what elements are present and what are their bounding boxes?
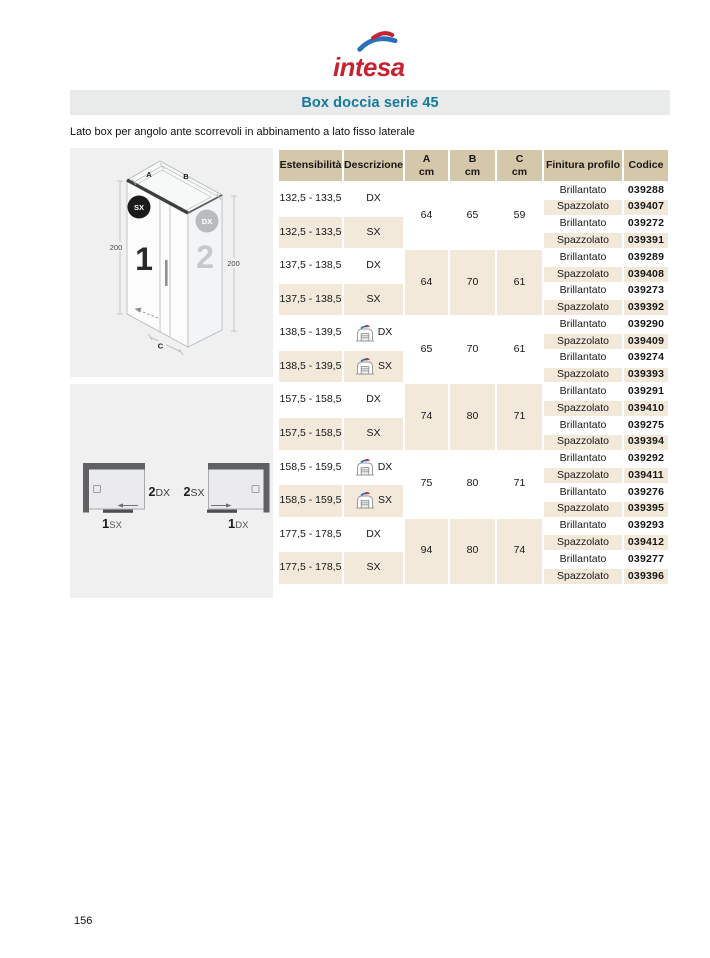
finish-cell: Spazzolato (543, 434, 623, 451)
page-number: 156 (74, 915, 92, 927)
dim-b-cell: 65 (449, 182, 496, 249)
column-header-0: Estensibilità (278, 149, 343, 182)
warehouse-icon (355, 492, 375, 509)
code-cell: 039395 (623, 501, 669, 518)
dim-c-cell: 71 (496, 451, 543, 518)
badge-dx-label: DX (202, 217, 212, 226)
dim-b-cell: 80 (449, 383, 496, 450)
code-cell: 039289 (623, 249, 669, 266)
orientation-label: DX (366, 260, 381, 272)
table-row: 137,5 - 138,5DX647061Brillantato039289 (278, 249, 669, 266)
warehouse-icon (355, 459, 375, 476)
description-content: DX (344, 193, 403, 205)
extensibility-cell: 137,5 - 138,5 (278, 249, 343, 283)
code-cell: 039409 (623, 333, 669, 350)
warehouse-icon (355, 358, 375, 375)
description-cell: DX (343, 182, 404, 216)
extensibility-cell: 177,5 - 178,5 (278, 518, 343, 552)
finish-cell: Brillantato (543, 283, 623, 300)
description-content: DX (344, 260, 403, 272)
height-right-label: 200 (227, 259, 240, 268)
extensibility-cell: 158,5 - 159,5 (278, 451, 343, 485)
code-cell: 039275 (623, 417, 669, 434)
code-cell: 039407 (623, 199, 669, 216)
description-cell: SX (343, 417, 404, 451)
badge-sx-label: SX (134, 203, 144, 212)
orientation-label: DX (366, 394, 381, 406)
description-cell: DX (343, 316, 404, 350)
extensibility-cell: 138,5 - 139,5 (278, 350, 343, 384)
dim-a-cell: 74 (404, 383, 449, 450)
finish-cell: Spazzolato (543, 266, 623, 283)
description-cell: DX (343, 451, 404, 485)
orientation-label: SX (366, 428, 380, 440)
extensibility-cell: 157,5 - 158,5 (278, 417, 343, 451)
table-body: 132,5 - 133,5DX646559Brillantato039288Sp… (278, 182, 669, 585)
orientation-label: SX (378, 495, 392, 507)
table-row: 158,5 - 159,5 DX758071Brillantato039292 (278, 451, 669, 468)
description-content: SX (344, 358, 403, 375)
dim-b-cell: 80 (449, 451, 496, 518)
finish-cell: Brillantato (543, 451, 623, 468)
dim-c-cell: 61 (496, 249, 543, 316)
extensibility-cell: 158,5 - 159,5 (278, 484, 343, 518)
description-content: DX (344, 529, 403, 541)
wave-swoosh-icon (360, 33, 395, 49)
table-row: 177,5 - 178,5DX948074Brillantato039293 (278, 518, 669, 535)
table-row: 132,5 - 133,5DX646559Brillantato039288 (278, 182, 669, 199)
plan-left-side-label: 2DX (149, 485, 171, 499)
dim-c-label: C (158, 342, 164, 351)
code-cell: 039273 (623, 283, 669, 300)
finish-cell: Brillantato (543, 316, 623, 333)
description-cell: SX (343, 283, 404, 317)
warehouse-icon (355, 325, 375, 342)
description-content: SX (344, 294, 403, 306)
finish-cell: Brillantato (543, 249, 623, 266)
dim-a-cell: 94 (404, 518, 449, 585)
dim-a-cell: 64 (404, 249, 449, 316)
orientation-label: SX (366, 294, 380, 306)
column-header-3: Bcm (449, 149, 496, 182)
column-header-4: Ccm (496, 149, 543, 182)
code-cell: 039394 (623, 434, 669, 451)
extensibility-cell: 132,5 - 133,5 (278, 216, 343, 250)
orientation-label: DX (366, 193, 381, 205)
dim-b-label: B (183, 172, 189, 181)
finish-cell: Brillantato (543, 383, 623, 400)
finish-cell: Spazzolato (543, 568, 623, 585)
table-header-row: EstensibilitàDescrizioneAcmBcmCcmFinitur… (278, 149, 669, 182)
finish-cell: Brillantato (543, 551, 623, 568)
code-cell: 039408 (623, 266, 669, 283)
dim-a-cell: 75 (404, 451, 449, 518)
finish-cell: Brillantato (543, 484, 623, 501)
code-cell: 039410 (623, 400, 669, 417)
plan-diagram: 2DX 1SX 2SX 1DX (70, 384, 273, 598)
table-row: 138,5 - 139,5 DX657061Brillantato039290 (278, 316, 669, 333)
finish-cell: Spazzolato (543, 534, 623, 551)
extensibility-cell: 157,5 - 158,5 (278, 383, 343, 417)
iso-diagram: A B 200 200 (70, 148, 273, 377)
finish-cell: Spazzolato (543, 299, 623, 316)
iso-diagram-panel: A B 200 200 (70, 148, 273, 377)
orientation-label: SX (366, 562, 380, 574)
product-table: EstensibilitàDescrizioneAcmBcmCcmFinitur… (277, 148, 670, 586)
dim-a-cell: 64 (404, 182, 449, 249)
extensibility-cell: 132,5 - 133,5 (278, 182, 343, 216)
code-cell: 039277 (623, 551, 669, 568)
dim-b-cell: 70 (449, 249, 496, 316)
finish-cell: Brillantato (543, 216, 623, 233)
description-cell: SX (343, 484, 404, 518)
plan-right-side-label: 2SX (184, 485, 205, 499)
finish-cell: Spazzolato (543, 199, 623, 216)
code-cell: 039412 (623, 534, 669, 551)
column-header-5: Finitura profilo (543, 149, 623, 182)
dim-c-cell: 74 (496, 518, 543, 585)
code-cell: 039391 (623, 232, 669, 249)
series-title-bar: Box doccia serie 45 (70, 90, 670, 115)
plan-right-front-label: 1DX (228, 516, 249, 531)
code-cell: 039392 (623, 299, 669, 316)
code-cell: 039396 (623, 568, 669, 585)
swoosh-blue (360, 39, 395, 50)
code-cell: 039272 (623, 216, 669, 233)
table-row: 157,5 - 158,5DX748071Brillantato039291 (278, 383, 669, 400)
door-handle (165, 260, 168, 286)
description-cell: DX (343, 249, 404, 283)
dim-b-cell: 80 (449, 518, 496, 585)
code-cell: 039276 (623, 484, 669, 501)
finish-cell: Brillantato (543, 350, 623, 367)
description-content: DX (344, 325, 403, 342)
dim-c-cell: 61 (496, 316, 543, 383)
description-content: DX (344, 459, 403, 476)
orientation-label: SX (378, 361, 392, 373)
dim-a-cell: 65 (404, 316, 449, 383)
description-content: DX (344, 394, 403, 406)
code-cell: 039291 (623, 383, 669, 400)
sliding-door-bar (207, 510, 237, 513)
code-cell: 039274 (623, 350, 669, 367)
description-content: SX (344, 428, 403, 440)
description-cell: SX (343, 216, 404, 250)
dim-c-cell: 59 (496, 182, 543, 249)
finish-cell: Brillantato (543, 518, 623, 535)
column-header-2: Acm (404, 149, 449, 182)
finish-cell: Spazzolato (543, 333, 623, 350)
panel-1-number: 1 (135, 241, 153, 277)
extensibility-cell: 177,5 - 178,5 (278, 551, 343, 585)
code-cell: 039293 (623, 518, 669, 535)
height-left-label: 200 (110, 243, 123, 252)
code-cell: 039292 (623, 451, 669, 468)
code-cell: 039393 (623, 367, 669, 384)
finish-cell: Spazzolato (543, 400, 623, 417)
catalog-page: intesa Box doccia serie 45 Lato box per … (0, 0, 710, 958)
subtitle-text: Lato box per angolo ante scorrevoli in a… (70, 126, 415, 138)
description-cell: DX (343, 383, 404, 417)
description-cell: SX (343, 551, 404, 585)
column-header-1: Descrizione (343, 149, 404, 182)
code-cell: 039411 (623, 467, 669, 484)
finish-cell: Brillantato (543, 417, 623, 434)
plan-left (83, 463, 145, 513)
plan-left-front-label: 1SX (102, 516, 123, 531)
code-cell: 039288 (623, 182, 669, 199)
sliding-door-bar (103, 510, 133, 513)
description-content: SX (344, 492, 403, 509)
finish-cell: Spazzolato (543, 467, 623, 484)
panel-2-number: 2 (196, 239, 214, 275)
finish-cell: Spazzolato (543, 367, 623, 384)
dim-b-cell: 70 (449, 316, 496, 383)
dim-c-cell: 71 (496, 383, 543, 450)
page-title: Box doccia serie 45 (301, 95, 438, 111)
table-header: EstensibilitàDescrizioneAcmBcmCcmFinitur… (278, 149, 669, 182)
brand-wordmark: intesa (333, 54, 405, 82)
finish-cell: Brillantato (543, 182, 623, 199)
orientation-label: SX (366, 227, 380, 239)
extensibility-cell: 138,5 - 139,5 (278, 316, 343, 350)
plan-right (207, 463, 270, 513)
orientation-label: DX (378, 327, 393, 339)
extensibility-cell: 137,5 - 138,5 (278, 283, 343, 317)
code-cell: 039290 (623, 316, 669, 333)
plan-diagram-panel: 2DX 1SX 2SX 1DX (70, 384, 273, 598)
description-cell: SX (343, 350, 404, 384)
finish-cell: Spazzolato (543, 232, 623, 249)
finish-cell: Spazzolato (543, 501, 623, 518)
orientation-label: DX (366, 529, 381, 541)
brand-logo: intesa (332, 31, 418, 83)
description-cell: DX (343, 518, 404, 552)
description-content: SX (344, 562, 403, 574)
description-content: SX (344, 227, 403, 239)
column-header-6: Codice (623, 149, 669, 182)
dim-a-label: A (146, 170, 152, 179)
orientation-label: DX (378, 462, 393, 474)
